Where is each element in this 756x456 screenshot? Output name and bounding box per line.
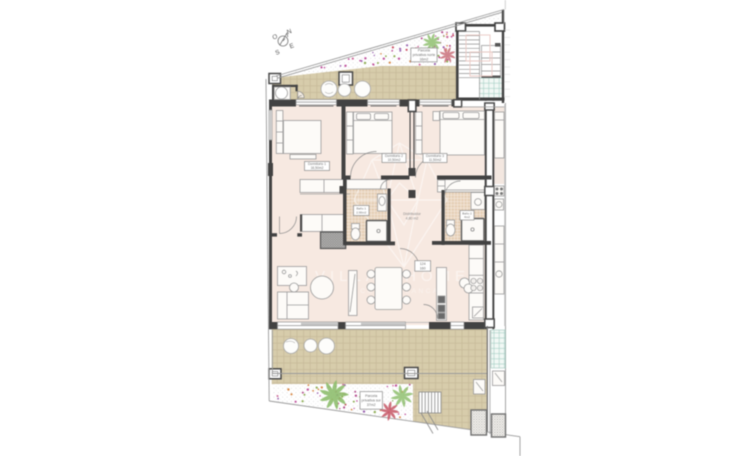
svg-text:Parcela: Parcela	[418, 49, 430, 53]
svg-text:4m2: 4m2	[464, 215, 470, 219]
svg-text:16m2: 16m2	[419, 58, 428, 62]
svg-text:privativa sur: privativa sur	[362, 399, 382, 403]
svg-text:37m2: 37m2	[367, 403, 376, 407]
svg-text:privativa norte: privativa norte	[413, 53, 436, 57]
svg-text:4,80 m2: 4,80 m2	[406, 216, 419, 220]
svg-text:160: 160	[420, 267, 426, 271]
svg-text:16,50m2: 16,50m2	[311, 166, 324, 170]
svg-text:2,90m2: 2,90m2	[356, 210, 366, 214]
svg-text:11,50m2: 11,50m2	[429, 158, 442, 162]
svg-text:124: 124	[420, 262, 426, 266]
svg-text:10,50m2: 10,50m2	[388, 158, 401, 162]
svg-text:Parcela: Parcela	[365, 394, 377, 398]
